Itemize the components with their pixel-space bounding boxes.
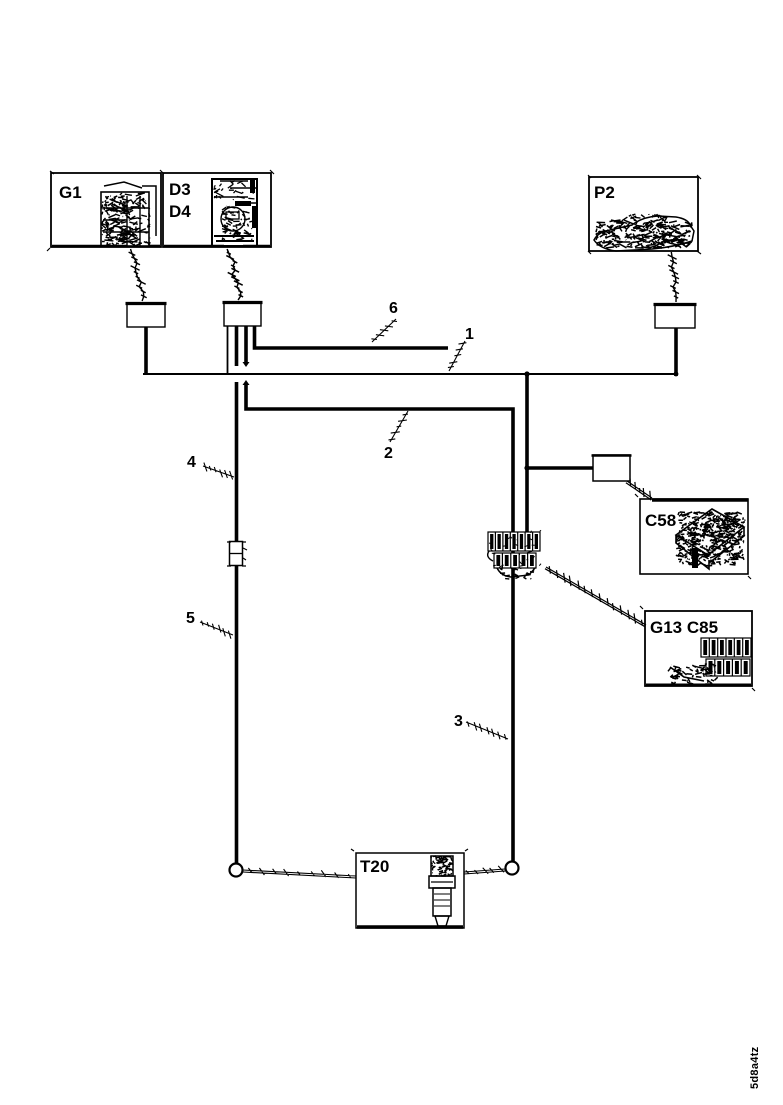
svg-text:P2: P2	[594, 183, 615, 202]
svg-text:5d8a4tz: 5d8a4tz	[749, 1046, 761, 1089]
svg-text:1: 1	[465, 326, 474, 343]
svg-text:3: 3	[454, 713, 463, 730]
svg-text:D4: D4	[169, 202, 191, 221]
svg-text:C58: C58	[645, 511, 676, 530]
svg-text:6: 6	[389, 300, 398, 317]
svg-text:5: 5	[186, 610, 195, 627]
svg-text:4: 4	[187, 454, 196, 471]
svg-text:G13 C85: G13 C85	[650, 618, 718, 637]
svg-text:G1: G1	[59, 183, 82, 202]
svg-text:D3: D3	[169, 180, 191, 199]
svg-text:2: 2	[384, 445, 393, 462]
svg-text:T20: T20	[360, 857, 389, 876]
